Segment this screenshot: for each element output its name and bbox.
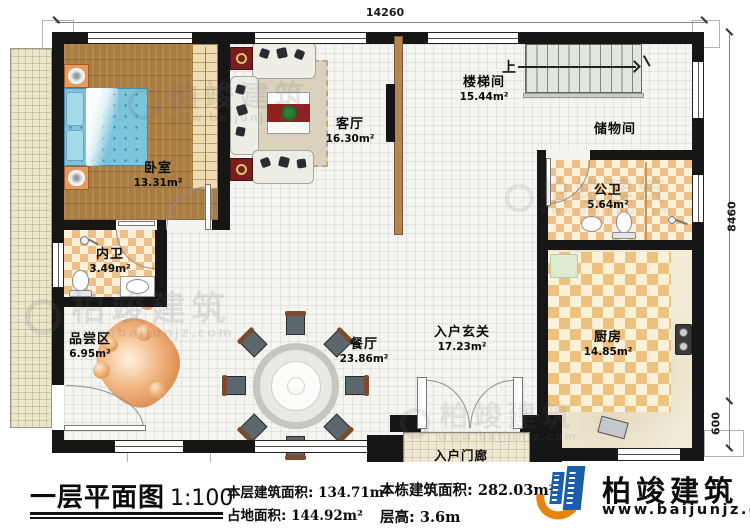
exterior-side-path [10, 48, 52, 428]
tasting-stool [93, 362, 110, 379]
stat-building-area: 本栋建筑面积: 282.03m² [380, 479, 555, 500]
room-label-bedroom: 卧室 13.31m² [127, 162, 189, 189]
room-label-storage: 储物间 [585, 123, 645, 138]
sofa-cushion [235, 84, 246, 95]
staircase [525, 44, 642, 93]
entry-door-right-leaf [513, 377, 523, 429]
wall-kitchen-left [537, 250, 548, 448]
gas-stove [675, 324, 692, 355]
nightstand [64, 166, 89, 190]
shower-icon [80, 236, 89, 245]
brand-logo-icon [536, 466, 594, 522]
dimension-right-height: 8460 [726, 189, 739, 245]
tv [386, 84, 395, 142]
room-label-dining: 餐厅 23.86m² [338, 338, 390, 365]
wardrobe [192, 44, 218, 190]
window-stair-top [428, 32, 518, 44]
sofa-top [252, 42, 316, 79]
nightstand [64, 64, 89, 88]
room-label-living: 客厅 16.30m² [318, 118, 382, 145]
room-label-tasting: 品尝区 6.95m² [62, 333, 118, 360]
stat-footprint-area: 占地面积: 144.92m² [227, 504, 363, 524]
toilet [616, 211, 632, 233]
room-label-foyer: 入户玄关 17.23m² [425, 326, 499, 353]
title-underline [30, 517, 223, 519]
dining-chair [345, 376, 366, 395]
door-opening-tasting [52, 385, 64, 430]
window-living-top [255, 32, 366, 44]
door-opening-public-bath [546, 150, 590, 160]
plan-title: 一层平面图 [30, 477, 165, 514]
sofa-cushion [260, 157, 272, 169]
dimension-top-width: 14260 [345, 6, 425, 19]
stat-floor-area: 本层建筑面积: 134.71m² [227, 481, 390, 501]
window-tasting-bottom [115, 440, 183, 453]
sofa-left [230, 76, 259, 155]
stat-floor-height: 层高: 3.6m [380, 506, 460, 527]
room-label-stairwell: 楼梯间 15.44m² [452, 76, 516, 103]
sofa-cushion [296, 158, 306, 168]
stove-burner [679, 328, 688, 337]
door-leaf-tasting [64, 425, 146, 431]
side-table-lamp [230, 158, 253, 181]
brand-website: www.baijunjz.com [602, 502, 750, 518]
floor-plan-sheet: 上 [0, 0, 750, 531]
dining-chair [225, 376, 246, 395]
brand-logo-building [563, 466, 586, 510]
toilet-tank [612, 232, 636, 239]
pillow [66, 130, 84, 161]
dining-table-center [287, 377, 305, 395]
sink [126, 279, 149, 294]
room-label-private-bath: 内卫 3.49m² [88, 248, 132, 275]
stove-burner [679, 342, 688, 351]
sofa-cushion [235, 126, 245, 136]
tv-partition-wall [394, 36, 403, 235]
window-dining-bottom [255, 440, 367, 453]
wall-private-bath-right [155, 220, 167, 307]
room-label-kitchen: 厨房 14.85m² [580, 331, 636, 358]
stairs-up-label: 上 [502, 57, 516, 77]
entry-door-left-leaf [417, 377, 427, 429]
sofa-cushion [294, 49, 306, 61]
side-table-lamp [230, 47, 253, 70]
door-leaf-private-bath [118, 221, 155, 226]
staircase-ledge [523, 93, 644, 98]
stairs-direction-arrow [518, 66, 636, 68]
sofa-cushion [276, 47, 288, 59]
door-leaf-bedroom [205, 184, 211, 230]
sofa-cushion [259, 48, 270, 59]
tasting-stool [149, 382, 166, 399]
door-leaf-public-bath [546, 158, 551, 206]
bed-sheet [86, 88, 118, 166]
shower-screen [645, 162, 647, 240]
wall-bedroom-right [218, 32, 230, 230]
sofa-cushion [278, 156, 290, 168]
toilet-tank [69, 290, 92, 297]
window-stair-right [692, 62, 704, 118]
pillow [66, 92, 84, 126]
wall-private-bath-bottom [52, 297, 167, 307]
window-kitchen-bottom [618, 448, 680, 461]
window-bedroom-top [88, 32, 192, 44]
sink [581, 216, 602, 232]
window-public-bath-right [692, 175, 704, 222]
dining-chair [286, 314, 305, 335]
room-label-public-bath: 公卫 5.64m² [584, 184, 632, 211]
wall-public-bath-bottom [537, 240, 704, 250]
tasting-stool [136, 325, 152, 341]
toilet [72, 270, 89, 291]
table-plant [281, 105, 297, 121]
kitchen-mat [550, 254, 578, 278]
title-underline [30, 512, 223, 515]
sofa-bottom [252, 150, 314, 184]
dimension-line-top [55, 22, 705, 23]
sofa-cushion [236, 104, 249, 117]
window-private-bath-left [52, 243, 64, 287]
plan-scale: 1:100 [170, 486, 233, 511]
dimension-porch-depth: 600 [710, 404, 723, 444]
